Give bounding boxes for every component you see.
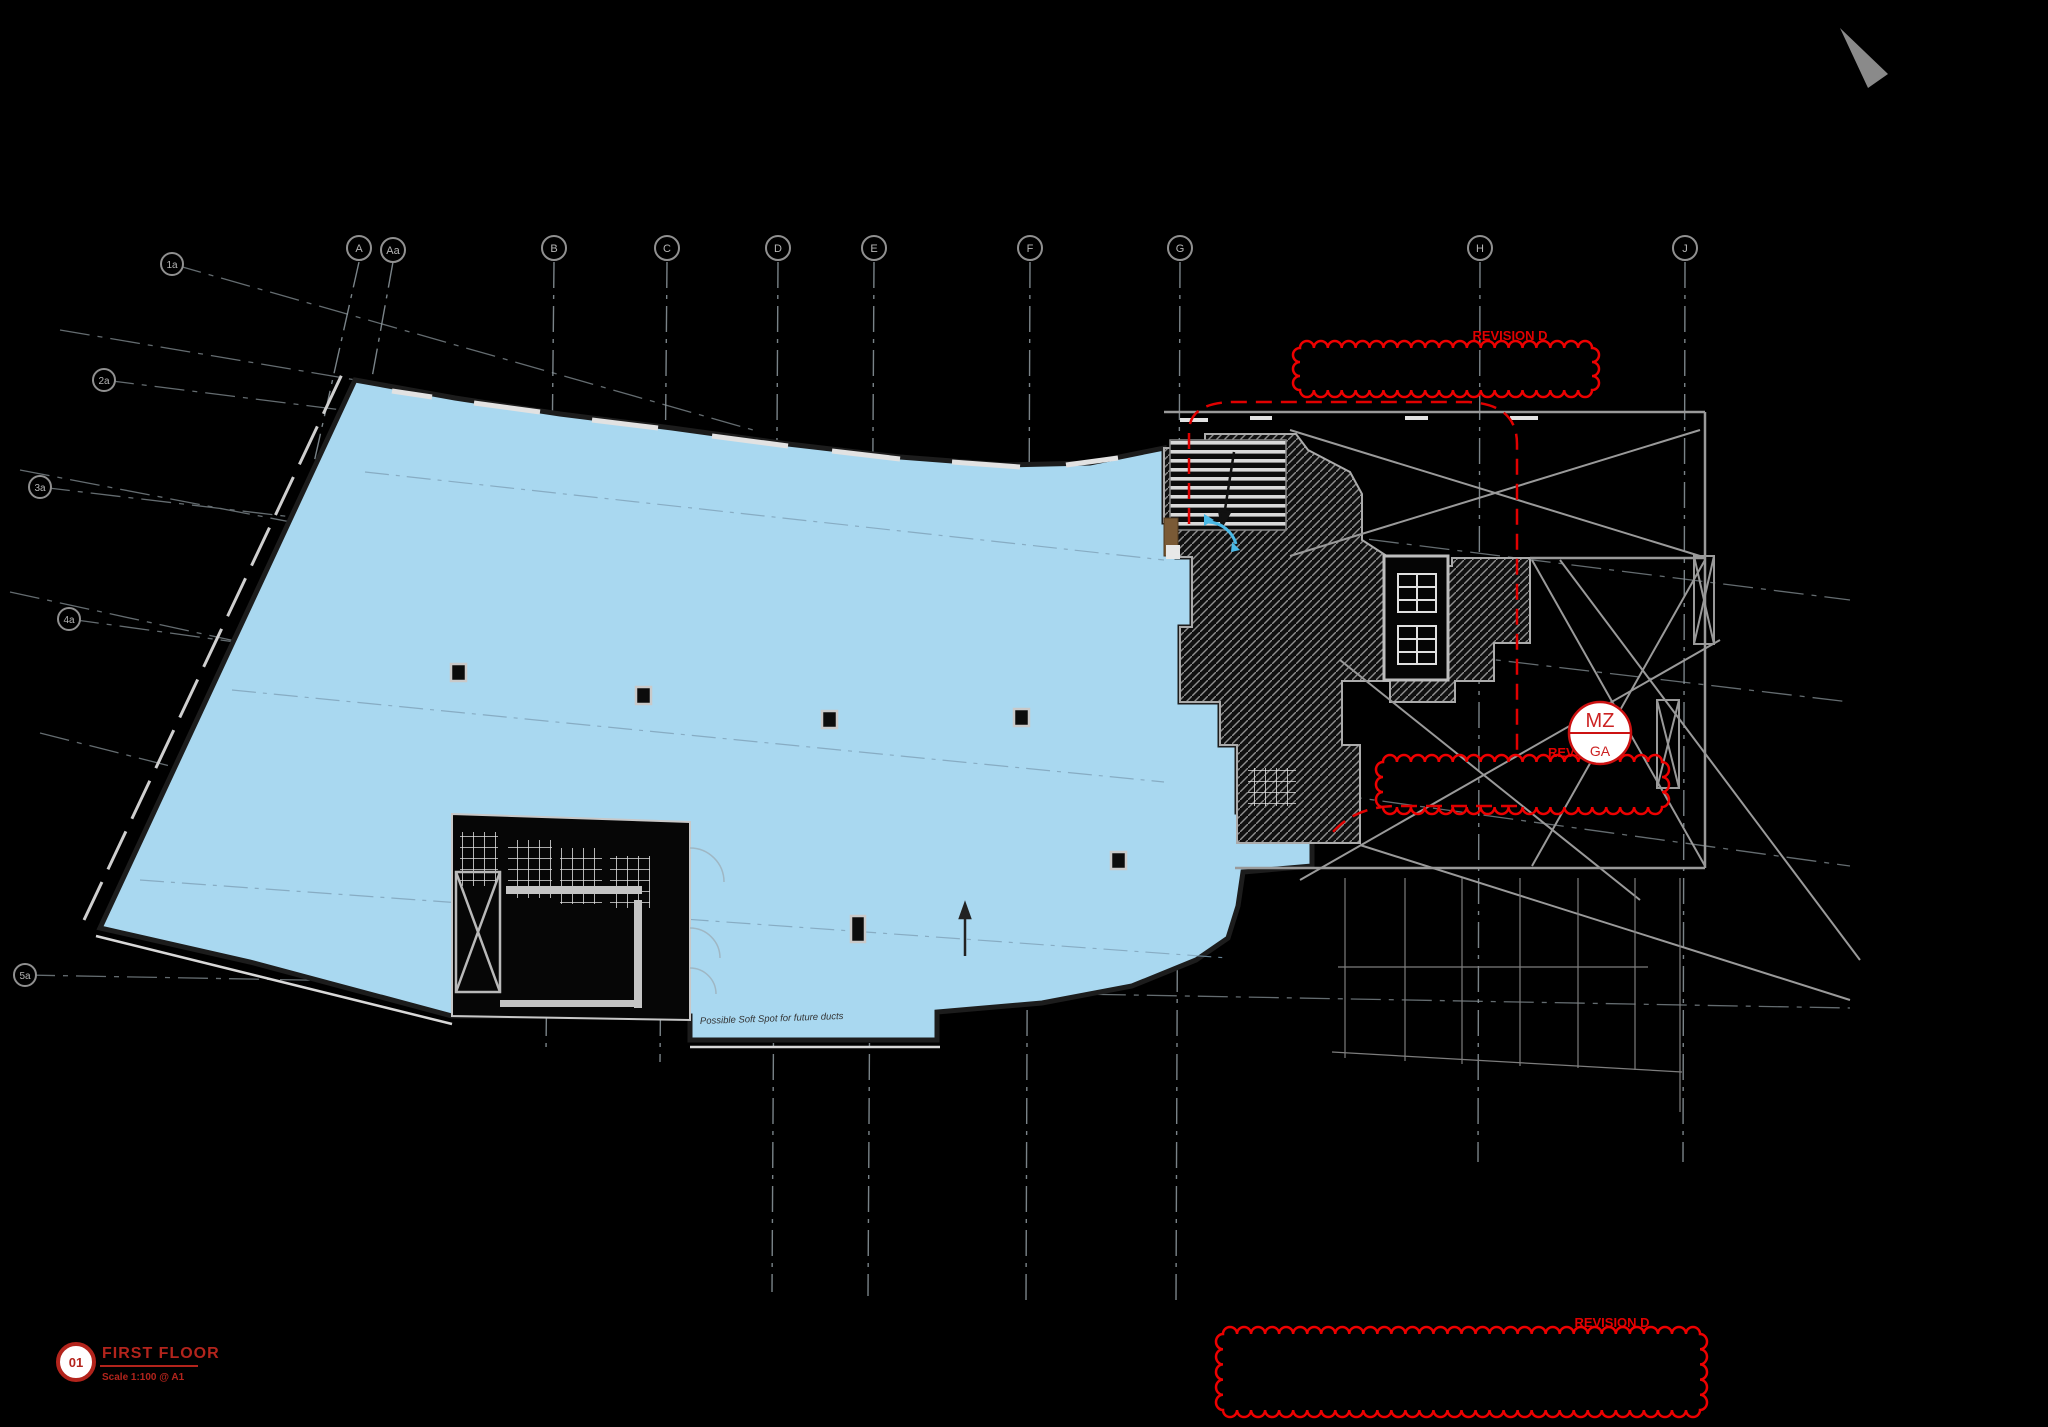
grid-bubble-H: H (1468, 236, 1492, 260)
grid-bubble-F: F (1018, 236, 1042, 260)
north-arrow-icon (1840, 28, 1888, 88)
title-block: 01 FIRST FLOOR Scale 1:100 @ A1 (58, 1344, 220, 1383)
louvre-grid-4 (610, 856, 650, 908)
grid-bubble-5a: 5a (14, 964, 36, 986)
floor-plan-canvas: A Aa B C D E F G H J 1a 2a 3a 4a 5a (0, 0, 2048, 1427)
marker-top-label: MZ (1586, 710, 1615, 732)
grid-bubble-B: B (542, 236, 566, 260)
grid-bubble-3a: 3a (29, 476, 51, 498)
plant-wall-bar-b (500, 1000, 640, 1007)
riser-grid (1248, 768, 1296, 806)
svg-text:Aa: Aa (386, 245, 400, 257)
column (1014, 709, 1029, 726)
revision-cloud-top (1293, 341, 1599, 397)
revision-cloud-bottom (1216, 1327, 1707, 1417)
svg-text:C: C (663, 243, 671, 255)
svg-text:4a: 4a (63, 615, 75, 626)
plant-wall-bar-h (506, 886, 642, 894)
external-paving-grid (1332, 878, 1682, 1112)
floor-plate (84, 370, 1312, 1047)
marker-bottom-label: GA (1590, 743, 1611, 759)
column (822, 711, 837, 728)
svg-text:H: H (1476, 243, 1484, 255)
grid-bubble-2a: 2a (93, 369, 115, 391)
svg-text:F: F (1027, 243, 1034, 255)
grid-bubble-G: G (1168, 236, 1192, 260)
svg-text:G: G (1176, 243, 1185, 255)
svg-text:3a: 3a (34, 483, 46, 494)
drawing-number: 01 (69, 1355, 83, 1370)
grid-bubble-E: E (862, 236, 886, 260)
top-wall-stubs (1180, 418, 1538, 420)
louvre-grid-3 (560, 848, 602, 904)
revision-label-top: REVISION D (1472, 328, 1547, 343)
column (1111, 852, 1126, 869)
grid-bubble-J: J (1673, 236, 1697, 260)
mezzanine-marker: MZ GA (1569, 702, 1631, 764)
column (636, 687, 651, 704)
louvre-grid-1 (460, 832, 498, 886)
grid-bubbles-top: A Aa B C D E F G H J (347, 236, 1697, 262)
svg-text:2a: 2a (98, 376, 110, 387)
svg-text:B: B (550, 243, 557, 255)
grid-bubble-4a: 4a (58, 608, 80, 630)
drawing-title: FIRST FLOOR (102, 1345, 220, 1362)
plant-room (452, 814, 724, 1020)
grid-bubble-A: A (347, 236, 371, 260)
floor-plate-area (100, 380, 1312, 1040)
grid-bubble-C: C (655, 236, 679, 260)
grid-bubble-Aa: Aa (381, 238, 405, 262)
floor-plan-drawing: A Aa B C D E F G H J 1a 2a 3a 4a 5a (0, 0, 2048, 1427)
svg-text:E: E (870, 243, 877, 255)
core-white-box (1166, 545, 1180, 559)
svg-text:1a: 1a (166, 260, 178, 271)
column (451, 664, 466, 681)
svg-text:A: A (355, 243, 363, 255)
svg-text:D: D (774, 243, 782, 255)
drawing-scale: Scale 1:100 @ A1 (102, 1372, 185, 1383)
svg-text:5a: 5a (19, 971, 31, 982)
grid-bubble-D: D (766, 236, 790, 260)
grid-bubble-1a: 1a (161, 253, 183, 275)
column-dark (851, 916, 865, 942)
svg-text:J: J (1682, 243, 1688, 255)
plant-wall-bar-v (634, 900, 642, 1008)
